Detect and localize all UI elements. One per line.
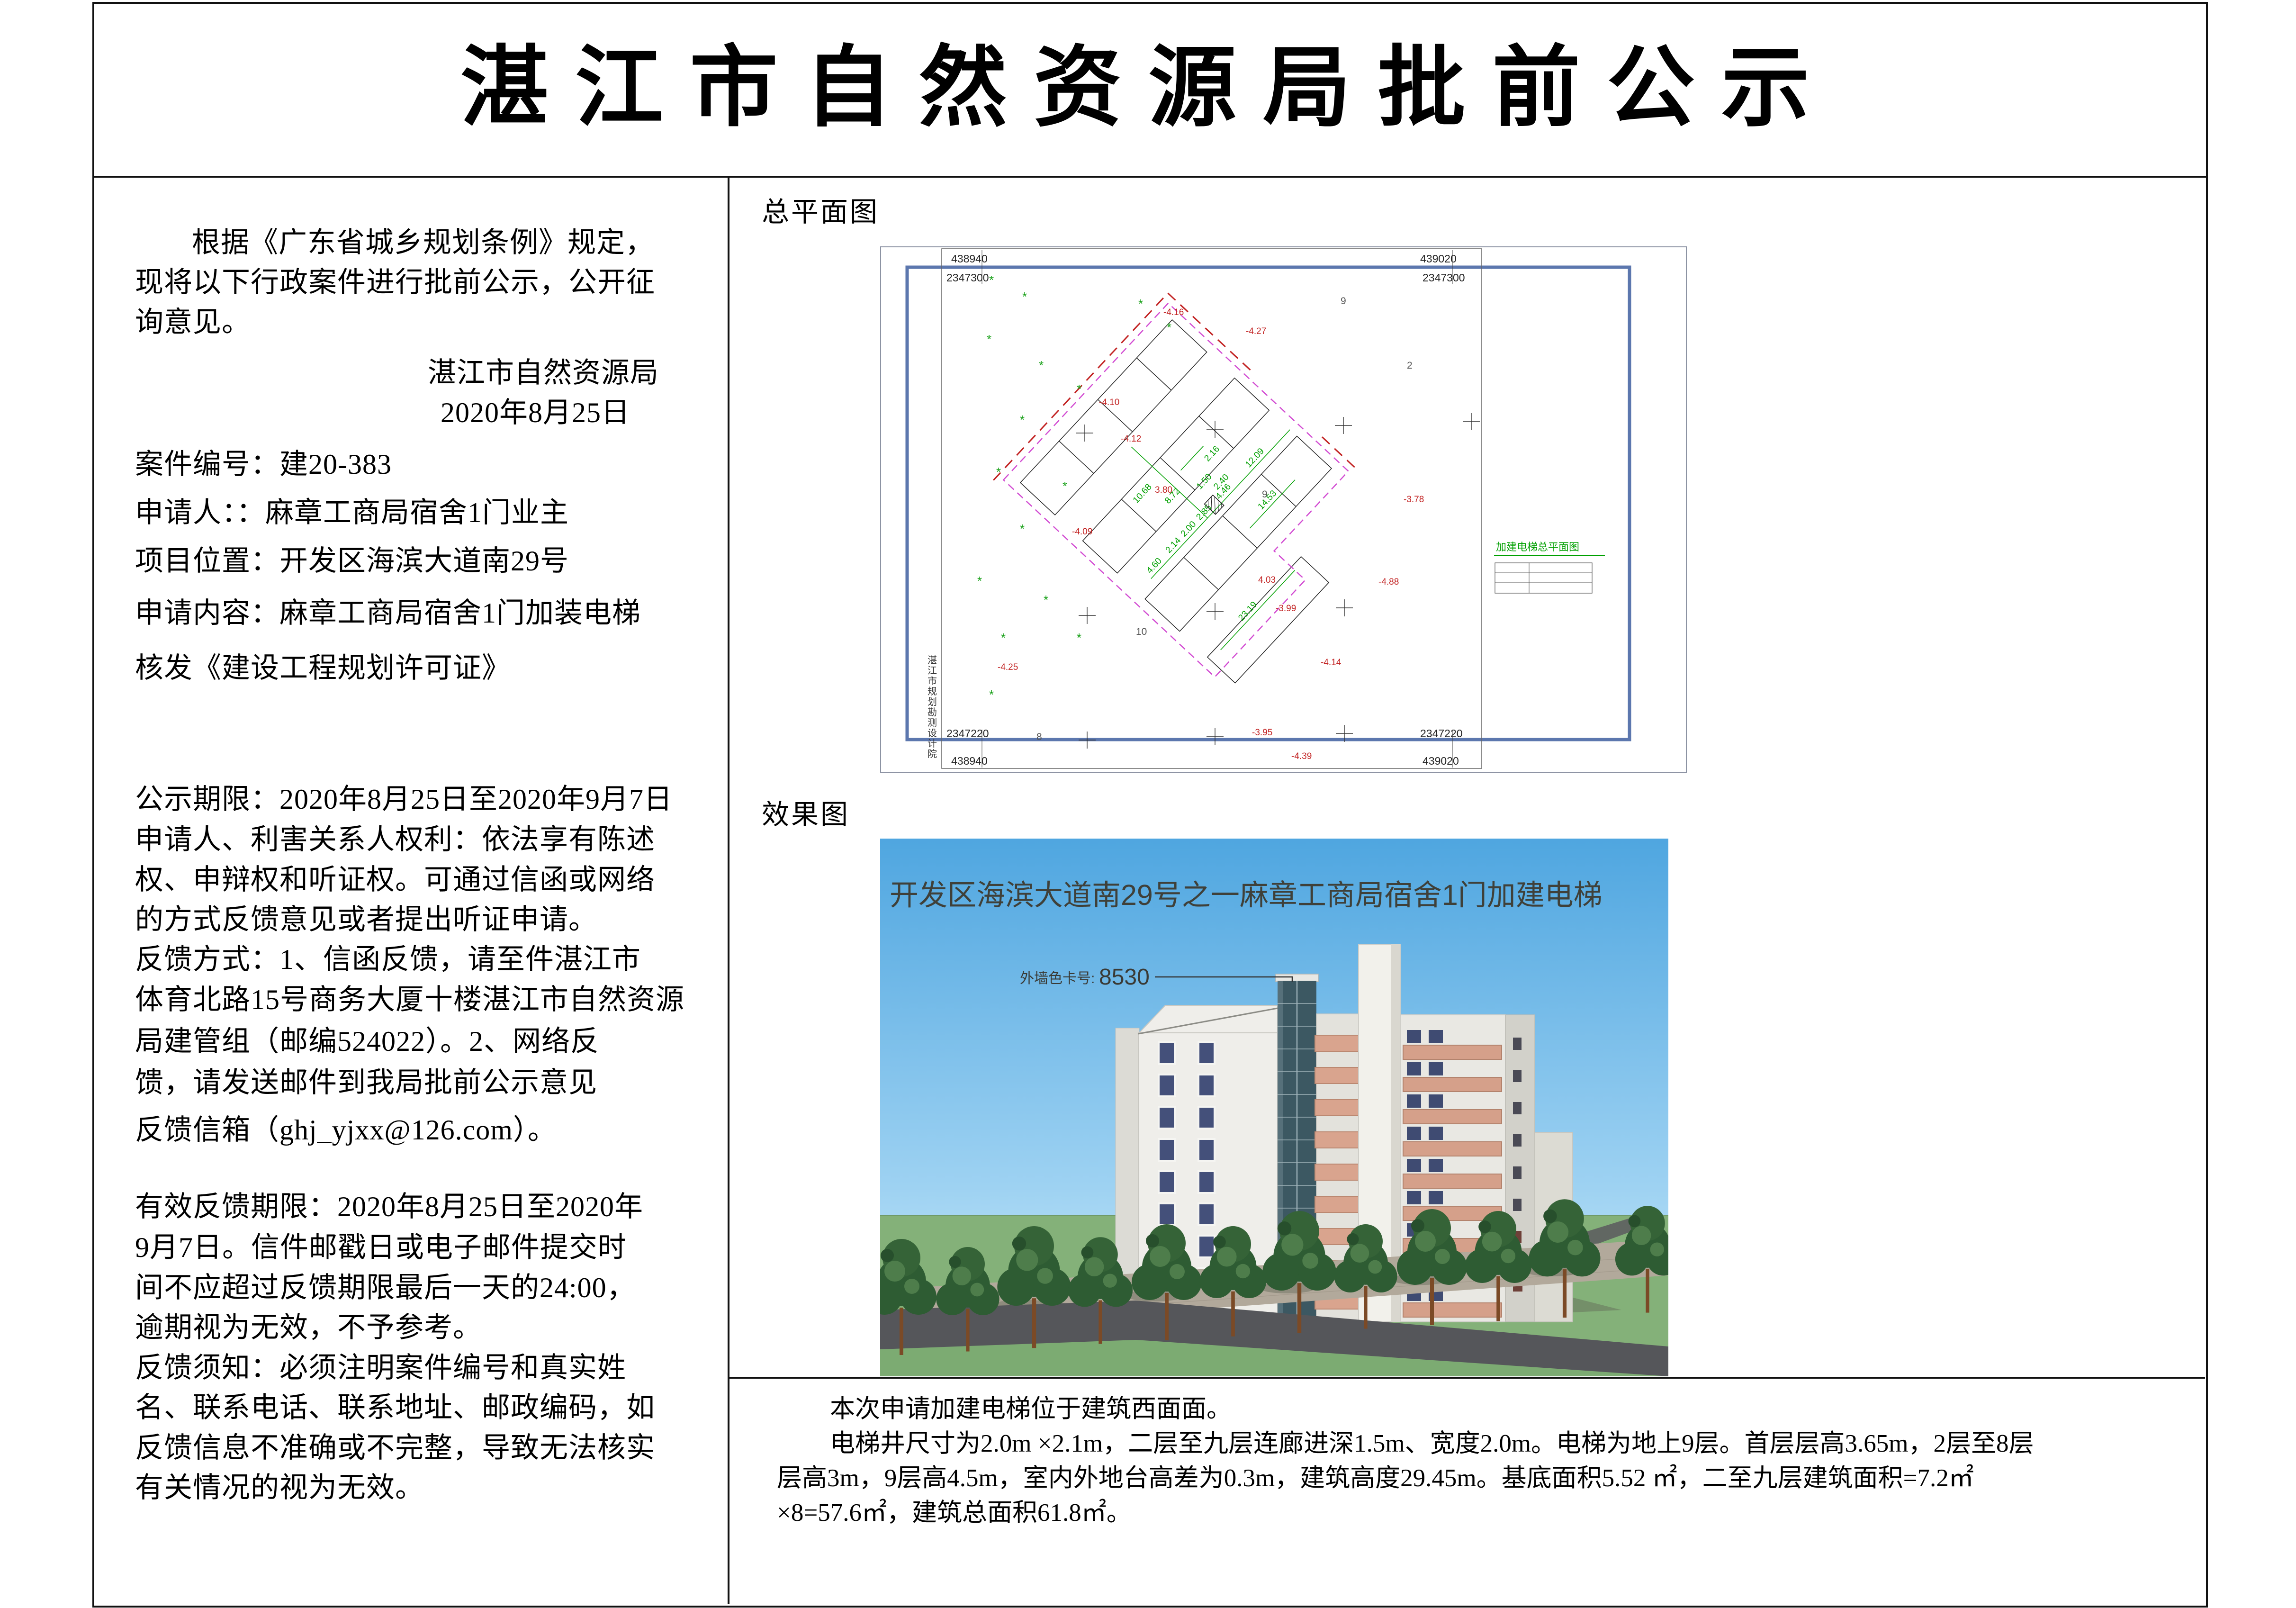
svg-text:-3.95: -3.95: [1252, 728, 1272, 738]
svg-text:10: 10: [1136, 626, 1147, 637]
description-line: 本次申请加建电梯位于建筑西面面。: [777, 1392, 2232, 1427]
site-plan-label: 总平面图: [762, 190, 879, 229]
svg-text:*: *: [1039, 358, 1044, 372]
svg-text:加建电梯总平面图: 加建电梯总平面图: [1496, 541, 1579, 553]
notice-line: 根据《广东省城乡规划条例》规定，: [135, 223, 703, 262]
notice-line: 反馈信息不准确或不完整，导致无法核实: [135, 1428, 703, 1468]
notice-line: 有关情况的视为无效。: [135, 1468, 703, 1508]
svg-text:*: *: [989, 687, 994, 702]
description-line: 层高3m，9层高4.5m，室内外地台高差为0.3m，建筑高度29.45m。基底面…: [777, 1461, 2179, 1496]
plan-outer-border: [881, 247, 1686, 772]
svg-text:8530: 8530: [1099, 965, 1150, 990]
notice-line: 间不应超过反馈期限最后一天的24:00，: [135, 1268, 703, 1308]
svg-text:*: *: [1044, 593, 1048, 607]
svg-text:*: *: [996, 465, 1001, 479]
bottom-text-separator: [729, 1377, 2205, 1379]
building-rendering: 开发区海滨大道南29号之一麻章工商局宿舍1门加建电梯 外墙色卡号: 8530: [880, 839, 1668, 1376]
svg-text:*: *: [1022, 289, 1027, 304]
notice-line: 逾期视为无效，不予参考。: [135, 1308, 703, 1347]
column-divider: [728, 176, 729, 1604]
svg-text:-4.14: -4.14: [1321, 658, 1342, 668]
svg-text:2347300: 2347300: [1423, 271, 1465, 284]
notice-line: 询意见。: [135, 302, 703, 342]
notice-line: 馈，请发送邮件到我局批前公示意见: [135, 1063, 703, 1102]
svg-text:-4.39: -4.39: [1291, 751, 1312, 761]
svg-text:2347220: 2347220: [1420, 727, 1463, 740]
svg-text:-4.27: -4.27: [1246, 326, 1266, 336]
notice-date: 2020年8月25日: [135, 393, 630, 433]
notice-line: 权、申辩权和听证权。可通过信函或网络: [135, 860, 703, 900]
notice-line: 体育北路15号商务大厦十楼湛江市自然资源: [135, 980, 703, 1020]
svg-text:-4.09: -4.09: [1072, 527, 1092, 537]
page-title: 湛江市自然资源局批前公示: [92, 2, 2204, 174]
notice-line: 申请人、利害关系人权利：依法享有陈述: [135, 820, 703, 859]
svg-text:-4.88: -4.88: [1378, 577, 1399, 587]
notice-line: 局建管组（邮编524022）。2、网络反: [135, 1021, 703, 1061]
render-label: 效果图: [762, 792, 850, 832]
svg-text:3.80: 3.80: [1155, 485, 1172, 495]
svg-text:-4.25: -4.25: [998, 662, 1018, 672]
svg-text:*: *: [977, 574, 982, 588]
svg-text:2347220: 2347220: [946, 727, 989, 740]
svg-text:-4.12: -4.12: [1121, 434, 1141, 444]
svg-text:2347300: 2347300: [946, 271, 989, 284]
svg-text:4.03: 4.03: [1258, 575, 1276, 585]
svg-text:*: *: [1020, 522, 1025, 536]
svg-text:9: 9: [1262, 489, 1268, 500]
notice-line: 现将以下行政案件进行批前公示，公开征: [135, 262, 703, 302]
svg-text:*: *: [1062, 479, 1067, 493]
svg-text:*: *: [1077, 631, 1081, 645]
svg-text:-3.99: -3.99: [1276, 604, 1296, 614]
svg-text:-3.78: -3.78: [1404, 495, 1424, 505]
notice-line: 名、联系电话、联系地址、邮政编码，如: [135, 1388, 703, 1427]
notice-line: 反馈须知：必须注明案件编号和真实姓: [135, 1348, 703, 1388]
project-location: 项目位置：开发区海滨大道南29号: [135, 541, 703, 581]
svg-text:9: 9: [1341, 296, 1346, 307]
notice-line: 有效反馈期限：2020年8月25日至2020年: [135, 1187, 703, 1227]
description-line: 电梯井尺寸为2.0m ×2.1m，二层至九层连廊进深1.5m、宽度2.0m。电梯…: [777, 1427, 2232, 1461]
notice-line: 9月7日。信件邮戳日或电子邮件提交时: [135, 1228, 703, 1267]
notice-period: 公示期限：2020年8月25日至2020年9月7日: [135, 779, 703, 819]
svg-text:-4.10: -4.10: [1099, 397, 1119, 407]
svg-text:8: 8: [1036, 732, 1042, 742]
svg-text:2: 2: [1407, 360, 1413, 371]
notice-signature: 湛江市自然资源局: [135, 353, 659, 393]
permit-line: 核发《建设工程规划许可证》: [135, 648, 703, 688]
render-caption: 开发区海滨大道南29号之一麻章工商局宿舍1门加建电梯: [890, 879, 1603, 911]
svg-text:439020: 439020: [1423, 755, 1459, 767]
notice-line: 的方式反馈意见或者提出听证申请。: [135, 900, 703, 940]
svg-text:外墙色卡号:: 外墙色卡号:: [1020, 971, 1095, 986]
svg-text:*: *: [987, 332, 991, 346]
application-content: 申请内容：麻章工商局宿舍1门加装电梯: [135, 593, 703, 633]
svg-text:*: *: [1167, 320, 1171, 334]
notice-line: 反馈方式：1、信函反馈，请至件湛江市: [135, 940, 703, 979]
svg-text:-4.16: -4.16: [1163, 307, 1184, 317]
case-number: 案件编号：建20-383: [135, 444, 703, 484]
svg-text:*: *: [1001, 631, 1006, 645]
feedback-email: 反馈信箱（ghj_yjxx@126.com）。: [135, 1110, 703, 1150]
applicant: 申请人：：麻章工商局宿舍1门业主: [135, 493, 703, 533]
svg-text:*: *: [989, 273, 994, 287]
svg-text:439020: 439020: [1420, 253, 1457, 265]
site-plan-drawing: 438940 2347300 439020 2347300 2347220 43…: [880, 246, 1687, 773]
description-line: ×8=57.6㎡，建筑总面积61.8㎡。: [777, 1496, 2179, 1530]
svg-text:*: *: [1077, 382, 1081, 396]
svg-text:*: *: [1020, 413, 1025, 427]
svg-text:*: *: [1138, 297, 1143, 311]
